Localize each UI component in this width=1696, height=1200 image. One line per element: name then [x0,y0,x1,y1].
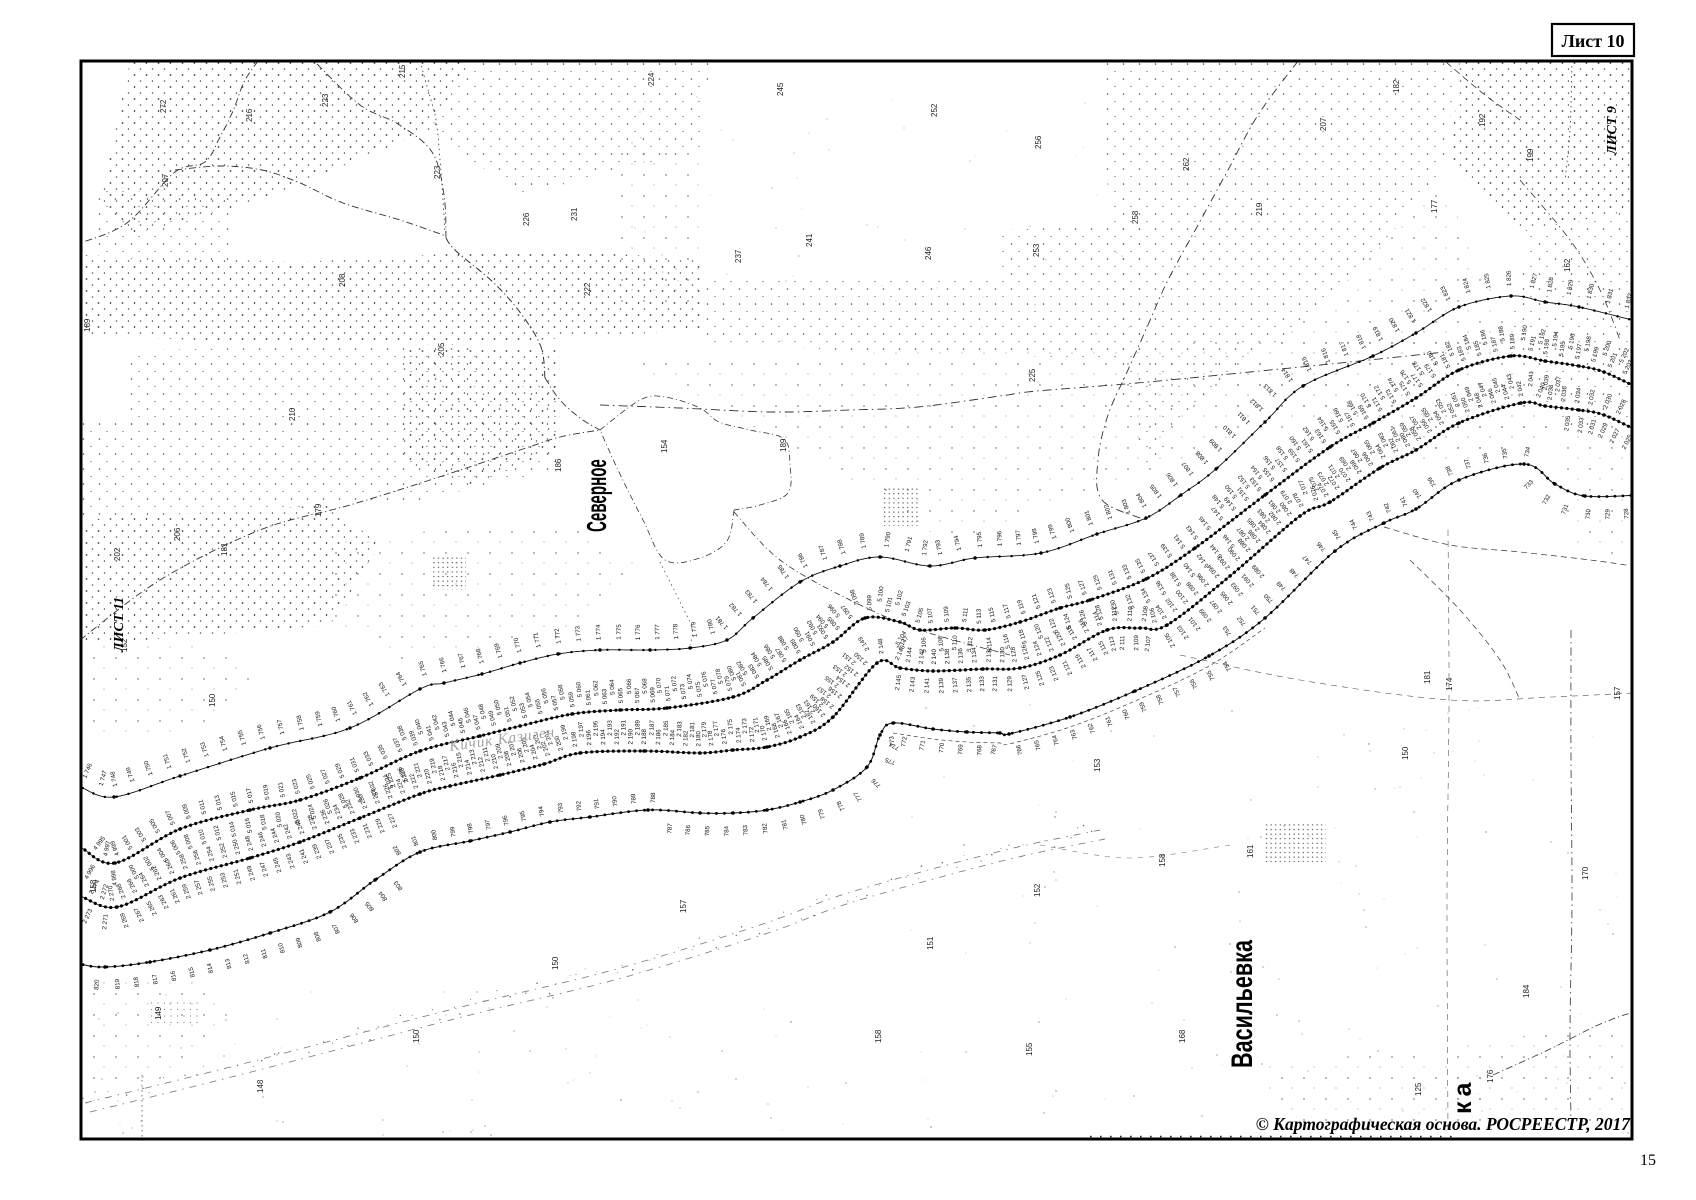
svg-text:154: 154 [660,439,669,453]
svg-text:272: 272 [159,99,168,113]
svg-text:2 188: 2 188 [641,728,648,744]
svg-text:770: 770 [938,742,946,754]
svg-text:2 133: 2 133 [979,675,987,691]
svg-text:730: 730 [1585,508,1592,519]
svg-text:5 067: 5 067 [634,687,641,703]
svg-text:210: 210 [288,407,297,421]
svg-text:789: 789 [630,793,638,804]
svg-text:1 796: 1 796 [996,530,1004,546]
svg-text:207: 207 [161,173,170,187]
svg-text:783: 783 [742,824,750,835]
svg-text:225: 225 [1028,368,1037,382]
svg-text:793: 793 [557,802,565,814]
svg-text:5 063: 5 063 [601,688,609,704]
svg-text:223: 223 [321,93,330,107]
svg-text:2 132: 2 132 [986,646,993,662]
svg-text:256: 256 [1034,135,1043,149]
svg-text:729: 729 [1604,508,1611,519]
svg-text:170: 170 [1581,866,1590,880]
svg-text:215: 215 [398,64,407,78]
svg-text:5 066: 5 066 [626,678,633,694]
svg-text:174: 174 [1445,677,1454,691]
svg-text:5 068: 5 068 [641,678,649,694]
svg-text:2 109: 2 109 [1133,635,1140,651]
svg-text:1 774: 1 774 [595,624,603,640]
svg-text:125: 125 [1414,1082,1423,1096]
svg-text:182: 182 [1392,79,1401,93]
svg-text:161: 161 [1246,844,1255,858]
svg-text:153: 153 [1093,758,1102,772]
svg-text:199: 199 [1526,148,1535,162]
svg-text:168: 168 [1178,1029,1187,1043]
svg-text:226: 226 [522,212,531,226]
svg-text:2 136: 2 136 [957,647,965,663]
svg-text:792: 792 [575,800,583,812]
svg-text:181: 181 [1423,670,1432,684]
svg-text:150: 150 [551,956,560,970]
svg-text:5 099: 5 099 [866,594,873,610]
svg-text:5 065: 5 065 [617,687,625,703]
svg-text:206: 206 [173,527,182,541]
svg-text:157: 157 [1613,686,1622,700]
svg-text:5 113: 5 113 [975,608,983,624]
svg-text:207: 207 [1319,117,1328,131]
svg-text:1 795: 1 795 [976,531,984,547]
svg-text:2 138: 2 138 [944,648,952,664]
svg-text:216: 216 [245,108,254,122]
svg-text:189: 189 [83,318,92,332]
svg-text:208: 208 [338,273,347,287]
svg-text:181: 181 [220,542,229,556]
svg-text:5 107: 5 107 [926,607,934,624]
svg-text:1 776: 1 776 [635,624,642,640]
svg-text:2 135: 2 135 [965,676,973,692]
svg-text:192: 192 [1478,113,1487,127]
svg-text:ка: ка [1449,1078,1477,1114]
svg-text:152: 152 [1033,883,1042,897]
svg-text:2 195: 2 195 [592,720,600,736]
svg-text:205: 205 [437,342,446,356]
svg-text:2 141: 2 141 [924,677,932,693]
svg-text:787: 787 [666,823,674,834]
svg-text:2 139: 2 139 [938,677,946,693]
svg-text:5 062: 5 062 [592,680,600,696]
svg-text:1 777: 1 777 [654,624,661,640]
svg-text:818: 818 [133,976,141,988]
svg-text:5 110: 5 110 [951,635,959,651]
svg-text:788: 788 [650,792,657,803]
svg-text:245: 245 [776,82,785,96]
svg-text:2 197: 2 197 [577,721,585,738]
svg-text:1 775: 1 775 [616,624,623,640]
svg-text:1 773: 1 773 [574,625,582,642]
svg-text:158: 158 [874,1029,883,1043]
svg-text:ЛИСТ 9: ЛИСТ 9 [1605,106,1620,156]
svg-text:5 064: 5 064 [609,679,617,695]
svg-text:253: 253 [1032,243,1041,257]
svg-text:148: 148 [256,1079,265,1093]
svg-text:202: 202 [113,547,122,561]
svg-text:2 111: 2 111 [1119,635,1126,650]
svg-text:1 826: 1 826 [1506,270,1514,286]
svg-text:2 134: 2 134 [971,647,979,663]
svg-text:158: 158 [89,879,98,893]
svg-text:157: 157 [679,899,688,913]
svg-text:2 137: 2 137 [952,677,960,693]
svg-text:2 110: 2 110 [1127,606,1135,622]
svg-text:5 061: 5 061 [585,689,593,706]
svg-text:Васильевка: Васильевка [1224,940,1258,1068]
svg-text:246: 246 [924,246,933,260]
svg-text:189: 189 [779,438,788,452]
svg-text:151: 151 [926,936,935,950]
svg-text:258: 258 [1131,210,1140,224]
svg-text:219: 219 [1255,202,1264,216]
svg-text:150: 150 [1401,746,1410,760]
svg-text:5 109: 5 109 [943,606,951,622]
svg-text:2 142: 2 142 [918,648,926,664]
svg-text:150: 150 [208,693,217,707]
svg-text:177: 177 [1430,199,1439,213]
svg-text:820: 820 [93,979,101,990]
svg-text:179: 179 [314,503,323,517]
svg-text:176: 176 [1486,1069,1495,1083]
svg-text:231: 231 [570,207,579,221]
svg-text:222: 222 [583,282,592,296]
svg-text:162: 162 [1563,258,1572,272]
svg-text:237: 237 [734,249,743,263]
svg-text:1 797: 1 797 [1015,529,1023,545]
svg-text:2 130: 2 130 [999,647,1006,663]
svg-text:2 041: 2 041 [1527,370,1535,386]
svg-text:184: 184 [1522,984,1531,998]
svg-text:2 148: 2 148 [877,638,885,655]
svg-text:Лист 10: Лист 10 [1561,31,1624,51]
svg-text:786: 786 [685,824,693,835]
svg-text:Северное: Северное [581,459,612,532]
svg-text:2 140: 2 140 [931,648,938,664]
svg-text:819: 819 [114,978,122,989]
svg-text:149: 149 [154,1006,163,1020]
svg-text:1 778: 1 778 [672,623,680,639]
svg-text:224: 224 [647,72,656,86]
svg-text:782: 782 [761,822,769,834]
svg-text:769: 769 [957,743,965,754]
svg-text:262: 262 [1182,157,1191,171]
svg-text:2 112: 2 112 [1111,606,1119,622]
svg-text:785: 785 [704,825,711,836]
svg-text:© Картографическая основа. РОС: © Картографическая основа. РОСРЕЕСТР, 20… [1256,1114,1632,1134]
svg-text:784: 784 [723,825,730,836]
svg-text:15: 15 [1640,1152,1656,1169]
svg-text:223: 223 [433,165,442,179]
svg-text:150: 150 [412,1029,421,1043]
svg-text:186: 186 [554,458,563,472]
svg-text:2 129: 2 129 [1006,675,1014,691]
svg-text:155: 155 [1025,1042,1034,1056]
svg-text:791: 791 [593,798,601,810]
svg-text:790: 790 [611,795,619,807]
svg-text:ЛИСТ 11: ЛИСТ 11 [112,597,127,653]
svg-text:2 175: 2 175 [727,718,735,735]
svg-text:158: 158 [1158,853,1167,867]
svg-text:241: 241 [805,233,814,247]
svg-text:728: 728 [1623,508,1631,519]
svg-text:5 189: 5 189 [1509,333,1517,349]
svg-text:2 131: 2 131 [992,675,1000,691]
svg-text:768: 768 [976,745,983,756]
svg-text:252: 252 [930,103,939,117]
